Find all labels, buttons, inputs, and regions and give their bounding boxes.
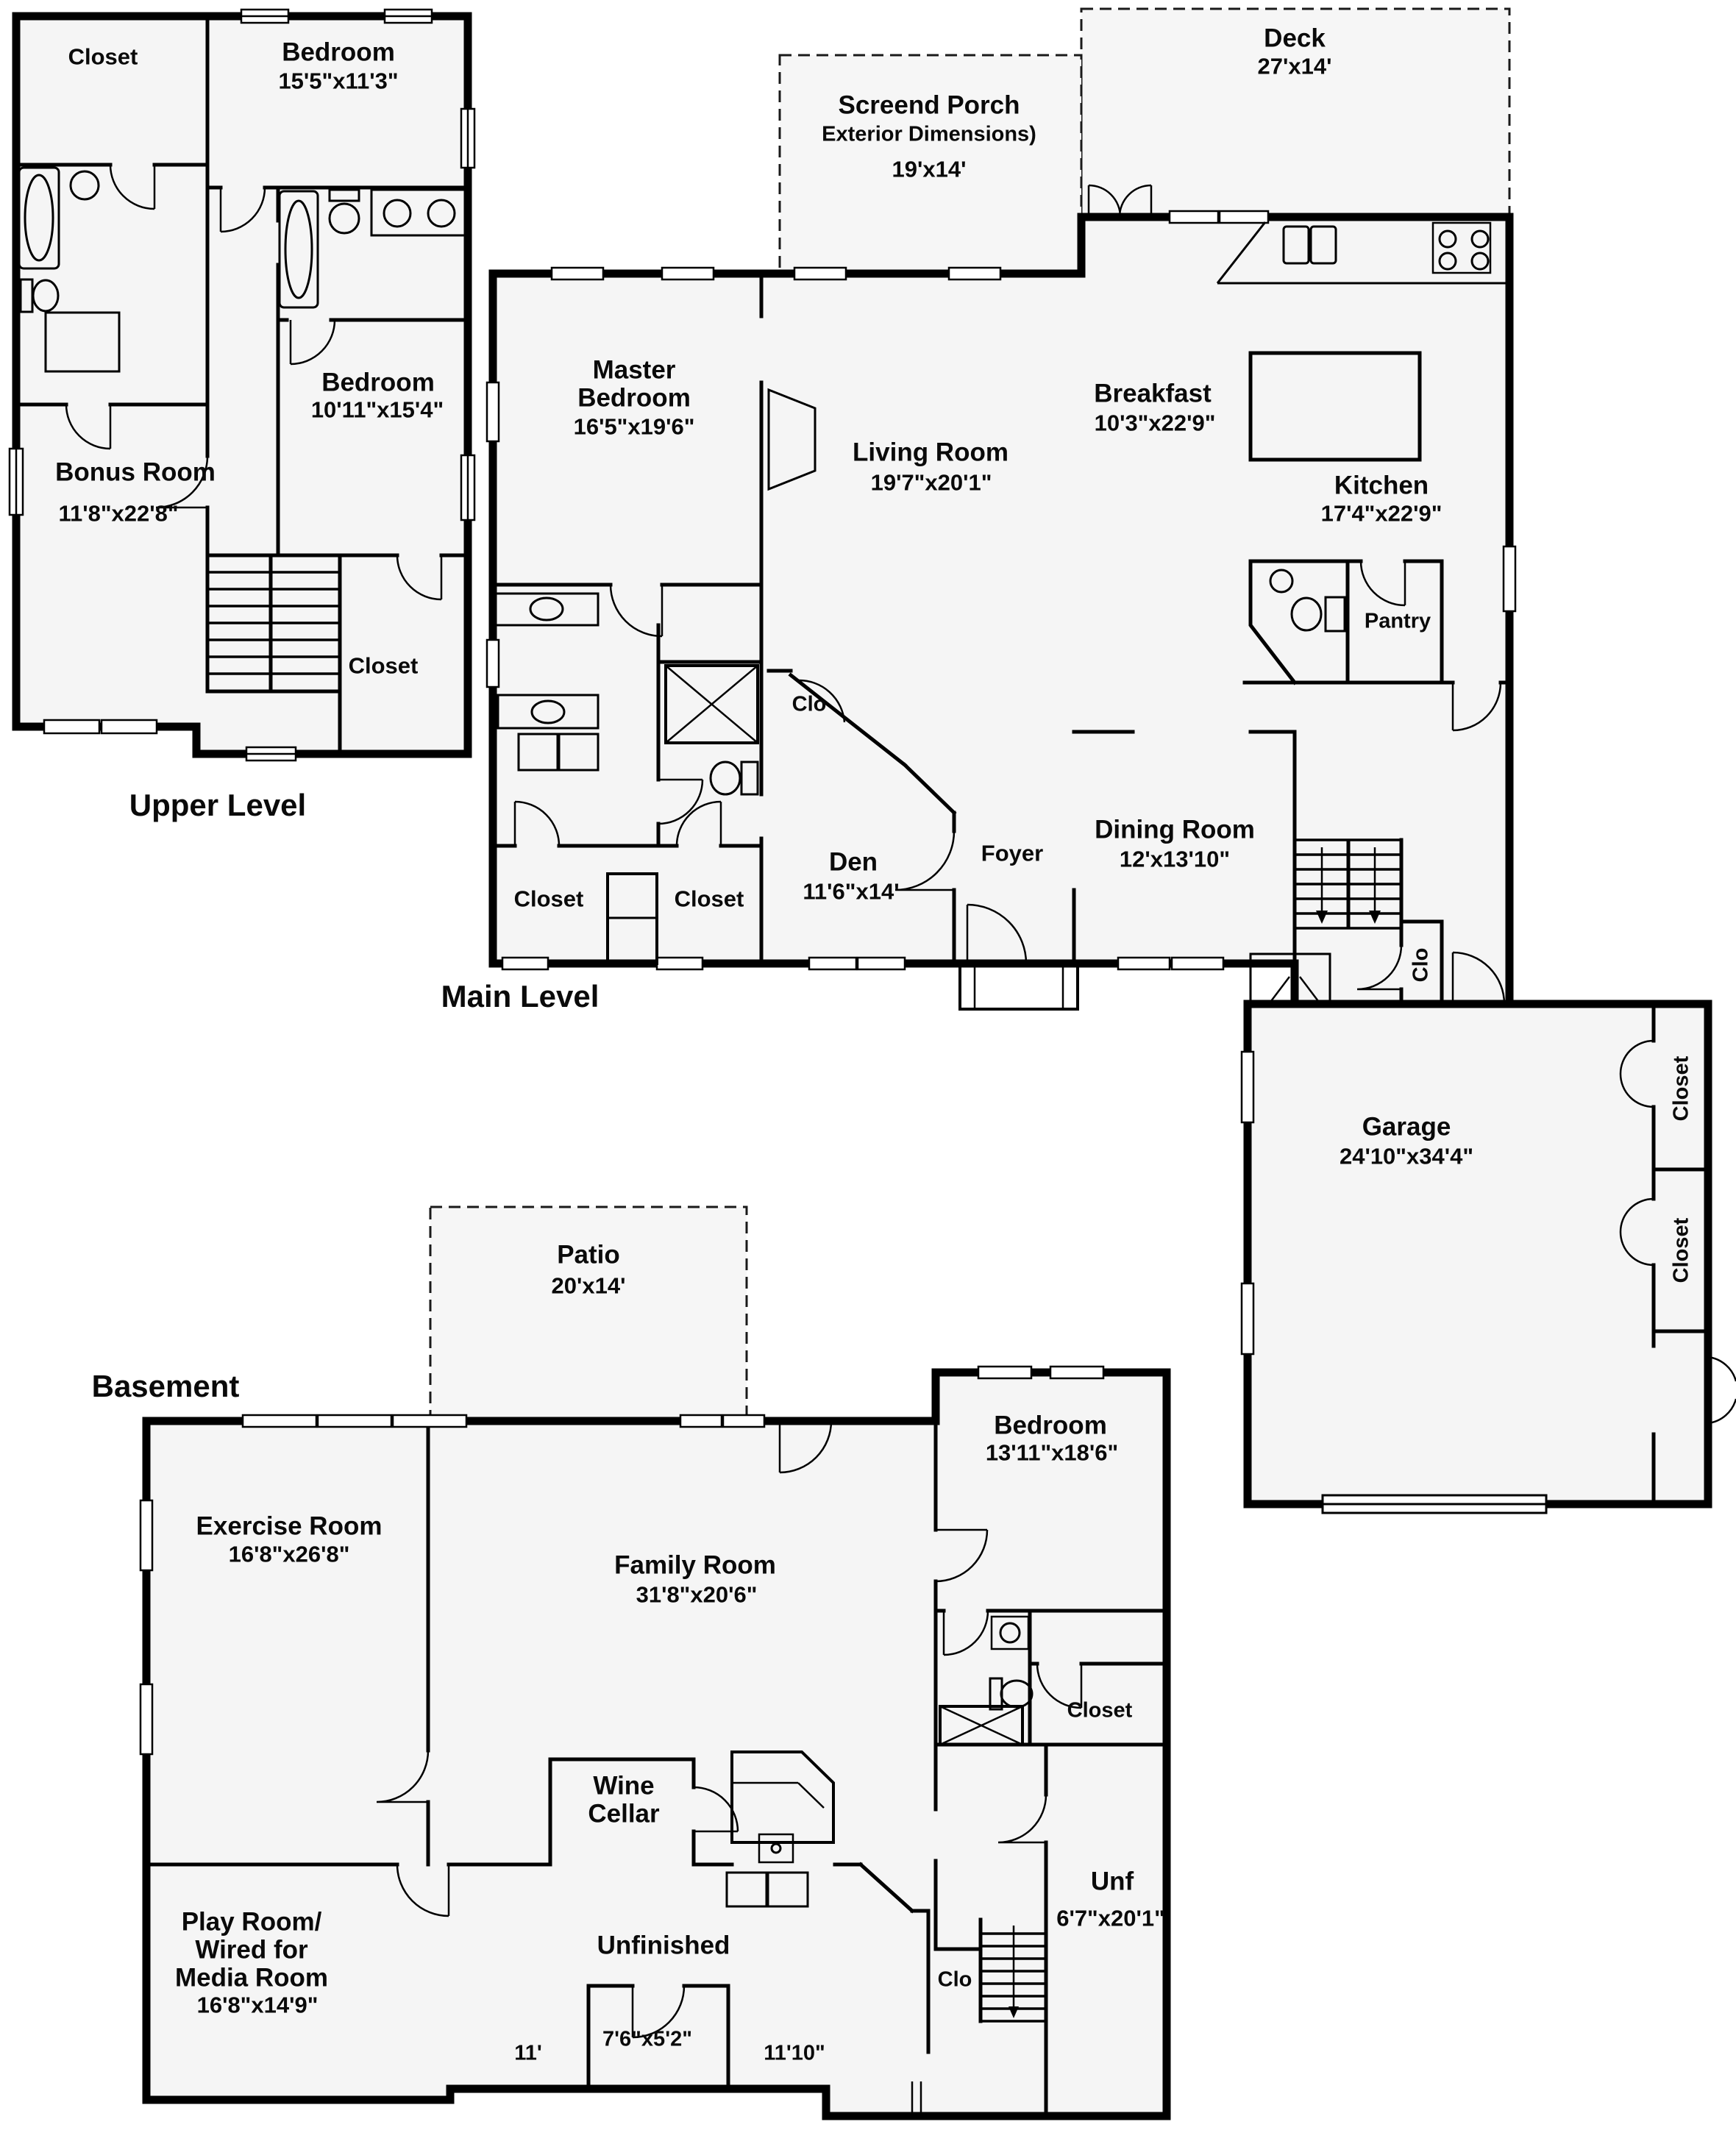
room-label-basement-bedroom: Bedroom — [994, 1413, 1107, 1439]
level-label-basement: Basement — [92, 1371, 240, 1402]
room-label-foyer: Foyer — [981, 842, 1043, 865]
room-label-playroom-line3: Media Room — [175, 1965, 328, 1991]
room-dims-master: 16'5"x19'6" — [574, 416, 695, 438]
floorplan-drawing — [0, 0, 1736, 2130]
room-label-wine-line2: Cellar — [588, 1801, 659, 1827]
level-label-main: Main Level — [441, 981, 600, 1012]
main-level-outline — [493, 217, 1509, 1004]
room-dims-exercise: 16'8"x26'8" — [229, 1543, 350, 1566]
room-label-garage-closet2: Closet — [1671, 1218, 1693, 1283]
room-label-clo-den: Clo — [792, 694, 827, 716]
room-dims-den: 11'6"x14' — [803, 880, 899, 903]
level-label-upper: Upper Level — [129, 790, 306, 821]
exterior-walls — [16, 16, 1708, 2116]
room-label-unf: Unf — [1091, 1869, 1134, 1895]
room-label-basement-clo: Clo — [938, 1970, 972, 1991]
dim-label-7-6x5-2: 7'6"x5'2" — [602, 2029, 692, 2051]
room-label-wine-line1: Wine — [593, 1773, 654, 1799]
room-dims-upper-bedroom1: 15'5"x11'3" — [278, 70, 398, 93]
dim-label-11-10: 11'10" — [764, 2043, 825, 2065]
room-label-garage-closet1: Closet — [1671, 1056, 1693, 1122]
garage-outline — [1248, 1004, 1708, 1504]
room-label-upper-closet: Closet — [68, 46, 138, 68]
room-dims-basement-bedroom: 13'11"x18'6" — [986, 1442, 1118, 1464]
room-dims-family-room: 31'8"x20'6" — [636, 1584, 758, 1606]
room-label-master-line1: Master — [593, 357, 676, 383]
room-label-family-room: Family Room — [614, 1553, 776, 1578]
room-dims-playroom: 16'8"x14'9" — [197, 1994, 319, 2017]
room-label-master-line2: Bedroom — [577, 385, 691, 411]
room-label-clo-stairs: Clo — [1411, 948, 1432, 983]
room-label-upper-bedroom1: Bedroom — [282, 40, 395, 65]
room-dims-breakfast: 10'3"x22'9" — [1095, 412, 1216, 435]
room-label-upper-closet2: Closet — [349, 655, 419, 677]
room-label-living-room: Living Room — [853, 440, 1008, 466]
room-dims-bonus-room: 11'8"x22'8" — [58, 502, 178, 525]
room-label-dining-room: Dining Room — [1095, 817, 1255, 843]
room-label-closet-left: Closet — [514, 888, 584, 911]
room-label-den: Den — [829, 849, 878, 875]
room-label-kitchen: Kitchen — [1334, 473, 1429, 499]
patio-outline — [430, 1207, 747, 1421]
area-note-screened-porch: Exterior Dimensions) — [822, 124, 1036, 146]
room-label-upper-bedroom2: Bedroom — [321, 370, 435, 396]
dim-label-11ft: 11' — [514, 2043, 542, 2065]
room-label-playroom-line1: Play Room/ — [182, 1909, 322, 1935]
room-label-basement-closet: Closet — [1067, 1700, 1133, 1722]
room-label-exercise: Exercise Room — [196, 1514, 383, 1539]
room-label-closet-right: Closet — [675, 888, 744, 911]
room-label-garage: Garage — [1362, 1114, 1451, 1140]
area-dims-deck: 27'x14' — [1258, 55, 1332, 78]
room-dims-living-room: 19'7"x20'1" — [871, 471, 992, 494]
room-dims-upper-bedroom2: 10'11"x15'4" — [311, 399, 444, 421]
area-dims-screened-porch: 19'x14' — [892, 158, 967, 181]
area-dims-patio: 20'x14' — [552, 1275, 626, 1297]
room-dims-unf: 6'7"x20'1" — [1056, 1907, 1165, 1930]
room-label-breakfast: Breakfast — [1094, 381, 1212, 407]
room-label-bonus-room: Bonus Room — [55, 460, 216, 485]
floor-plan-page: Closet Bedroom 15'5"x11'3" Bedroom 10'11… — [0, 0, 1736, 2130]
area-label-deck: Deck — [1264, 26, 1326, 51]
area-label-patio: Patio — [557, 1242, 620, 1268]
front-stoop — [960, 964, 1078, 1009]
room-label-pantry: Pantry — [1365, 611, 1431, 633]
room-dims-kitchen: 17'4"x22'9" — [1321, 502, 1442, 525]
room-label-playroom-line2: Wired for — [195, 1937, 307, 1963]
room-dims-dining-room: 12'x13'10" — [1120, 848, 1230, 871]
area-label-screened-porch: Screend Porch — [838, 93, 1020, 118]
room-label-unfinished: Unfinished — [597, 1933, 730, 1959]
room-dims-garage: 24'10"x34'4" — [1340, 1145, 1473, 1168]
